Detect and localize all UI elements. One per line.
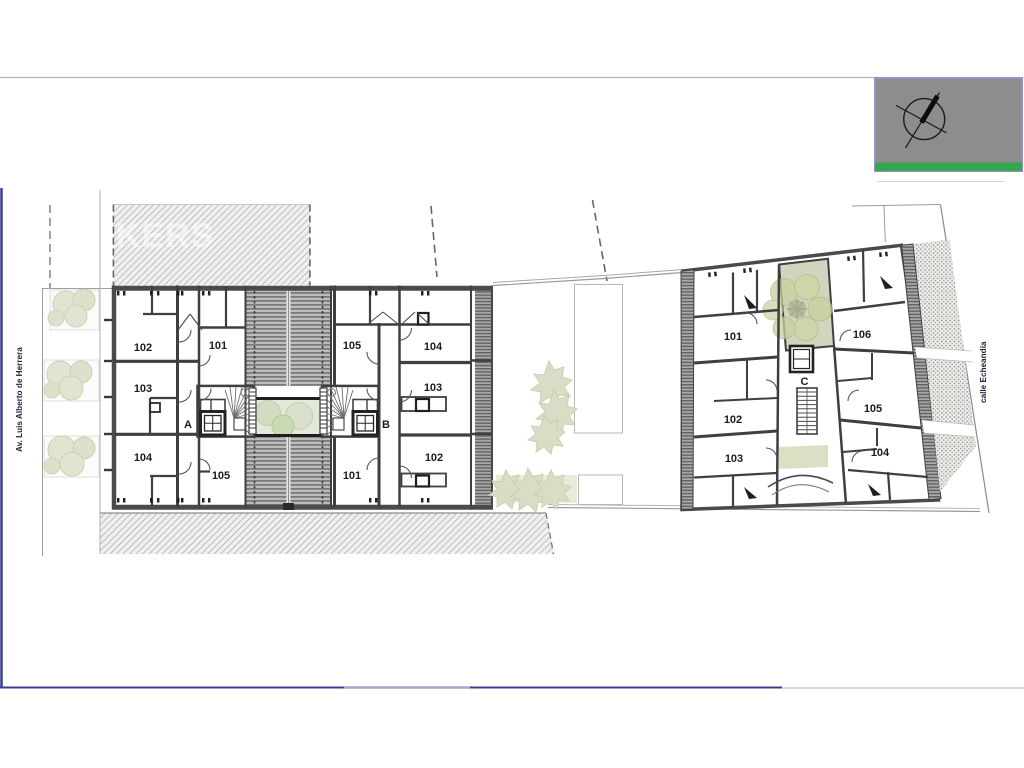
svg-text:104: 104 [871, 447, 890, 459]
svg-text:Av. Luis Alberto de Herrera: Av. Luis Alberto de Herrera [15, 347, 24, 452]
svg-text:105: 105 [343, 340, 361, 352]
svg-text:101: 101 [209, 340, 227, 352]
svg-text:C: C [801, 376, 809, 388]
svg-text:103: 103 [134, 383, 152, 395]
svg-text:calle Echeandía: calle Echeandía [979, 341, 988, 403]
svg-text:105: 105 [212, 470, 230, 482]
svg-text:102: 102 [425, 452, 443, 464]
svg-text:104: 104 [134, 452, 153, 464]
svg-text:102: 102 [724, 414, 742, 426]
svg-text:106: 106 [853, 329, 871, 341]
svg-text:103: 103 [424, 382, 442, 394]
svg-text:104: 104 [424, 341, 443, 353]
svg-text:A: A [184, 419, 192, 431]
svg-text:101: 101 [343, 470, 361, 482]
svg-text:103: 103 [725, 453, 743, 465]
svg-text:101: 101 [724, 331, 742, 343]
svg-text:102: 102 [134, 342, 152, 354]
svg-text:105: 105 [864, 403, 882, 415]
svg-text:B: B [382, 419, 390, 431]
svg-text:KERS: KERS [116, 217, 214, 255]
